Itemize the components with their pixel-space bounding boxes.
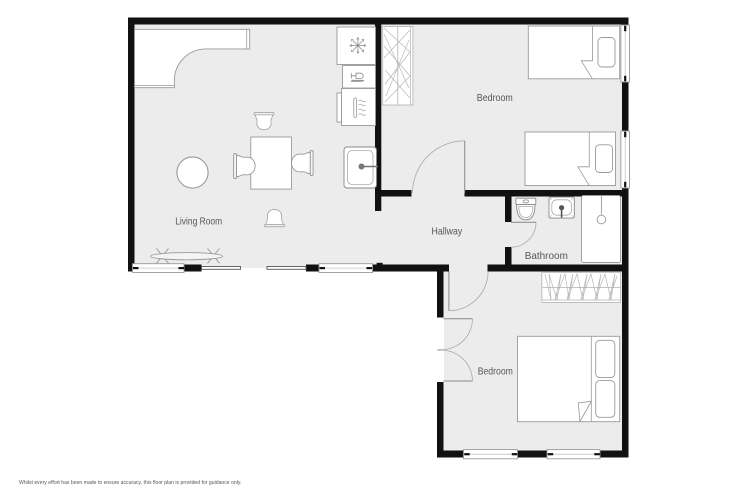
svg-text:Whilst every effort has been m: Whilst every effort has been made to ens… [19,480,242,486]
svg-text:Hallway: Hallway [432,227,463,238]
svg-text:Bedroom: Bedroom [478,366,513,377]
svg-text:Bathroom: Bathroom [525,251,568,262]
svg-text:Living Room: Living Room [175,217,222,228]
svg-text:Bedroom: Bedroom [477,93,513,104]
